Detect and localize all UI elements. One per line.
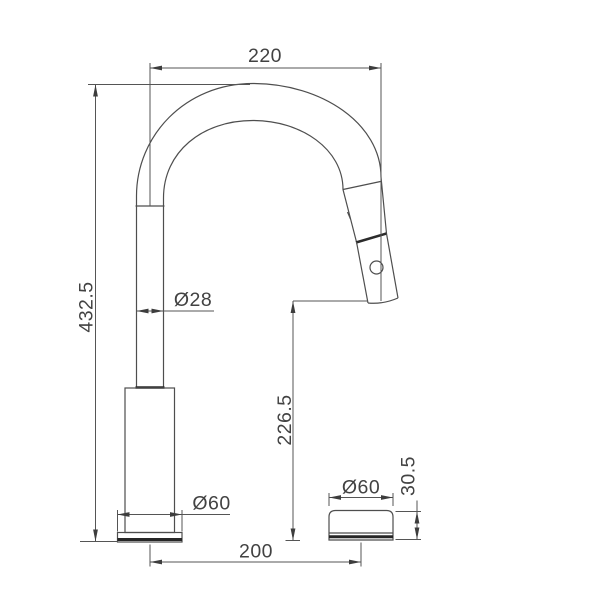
dimension-arrowhead	[150, 66, 162, 71]
faucet-technical-drawing: 220 432.5 Ø28 226.5 Ø60	[0, 0, 600, 600]
dimension-arrowhead	[93, 85, 98, 97]
spray-head-left-edge	[357, 242, 369, 303]
dimension-arrowhead	[152, 309, 164, 314]
dim-tube-diameter: Ø28	[137, 289, 215, 313]
side-handle	[329, 511, 393, 541]
spout-inner-curve	[164, 121, 357, 243]
dim-label-outlet-height: 226.5	[274, 394, 296, 445]
dimension-arrowhead	[415, 512, 420, 524]
dimension-arrowhead	[381, 495, 393, 500]
dim-label-handle-diameter: Ø60	[342, 477, 380, 499]
dimension-arrowhead	[369, 66, 381, 71]
spout-head-joint-upper	[343, 182, 381, 190]
dimension-arrowhead	[291, 529, 296, 541]
dimension-arrowhead	[93, 530, 98, 542]
dimension-arrowhead	[415, 528, 420, 540]
spout-head-joint-lower	[356, 234, 387, 243]
dim-hole-spacing: 200	[150, 541, 361, 567]
dim-label-base-diameter: Ø60	[192, 493, 230, 515]
dimension-arrowhead	[291, 301, 296, 313]
dim-outlet-height: 226.5	[274, 301, 368, 541]
faucet-body	[125, 388, 175, 533]
spray-head-bottom	[368, 298, 398, 303]
dimension-arrowhead	[329, 495, 341, 500]
spray-head-right-edge	[387, 234, 399, 299]
dim-handle-height: 30.5	[396, 456, 422, 539]
dimension-arrowhead	[118, 512, 130, 517]
dimension-arrowhead	[170, 512, 182, 517]
faucet-outline	[118, 84, 399, 543]
dim-label-hole-spacing: 200	[239, 541, 273, 563]
drawing-svg: 220 432.5 Ø28 226.5 Ø60	[0, 0, 600, 600]
dimension-arrowhead	[150, 560, 162, 565]
dim-label-spout-reach: 220	[248, 45, 282, 67]
dimension-arrowhead	[137, 309, 149, 314]
dim-label-overall-height: 432.5	[76, 281, 98, 332]
dim-label-handle-height: 30.5	[398, 456, 420, 496]
spray-head	[357, 234, 399, 304]
dim-handle-diameter: Ø60	[329, 477, 393, 507]
dim-overall-height: 432.5	[76, 85, 251, 542]
dim-label-tube-diameter: Ø28	[174, 289, 212, 311]
dimension-arrowhead	[349, 560, 361, 565]
